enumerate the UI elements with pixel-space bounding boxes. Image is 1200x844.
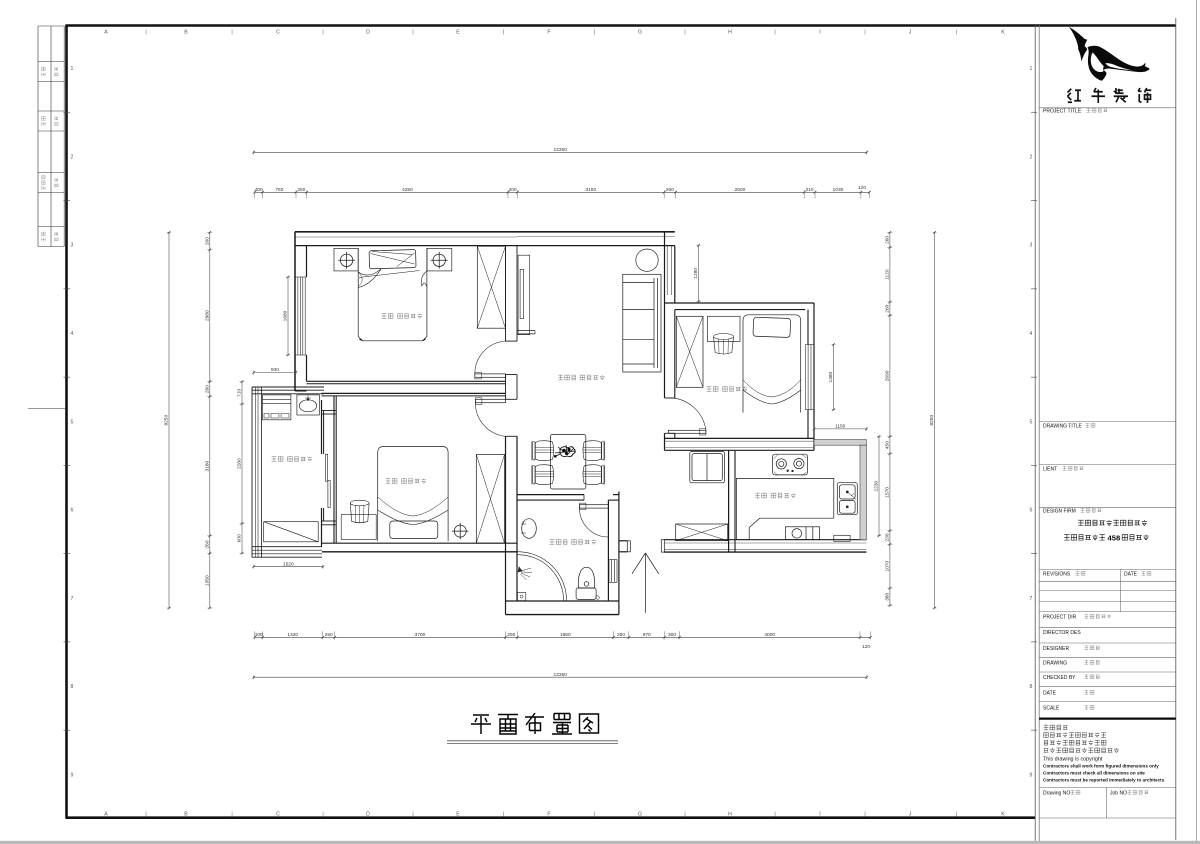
svg-text:260: 260: [297, 187, 305, 193]
svg-text:J: J: [909, 812, 912, 818]
svg-text:Contractors must be reported i: Contractors must be reported immediately…: [1043, 778, 1165, 783]
svg-text:260: 260: [204, 237, 210, 245]
svg-text:4: 4: [1030, 331, 1033, 337]
svg-text:6: 6: [1030, 508, 1033, 514]
svg-text:|: |: [594, 30, 595, 36]
svg-text:DRAWING TITLE: DRAWING TITLE: [1043, 424, 1083, 430]
svg-text:4250: 4250: [402, 187, 413, 193]
svg-text:|: |: [774, 30, 775, 36]
svg-text:100: 100: [255, 632, 263, 638]
svg-text:1680: 1680: [283, 310, 289, 321]
svg-text:1050: 1050: [204, 575, 210, 586]
svg-text:1520: 1520: [283, 562, 294, 568]
svg-text:2980: 2980: [204, 310, 210, 321]
svg-text:PROJECT TITLE: PROJECT TITLE: [1043, 109, 1082, 115]
svg-text:Drawing NO: Drawing NO: [1043, 791, 1070, 797]
svg-text:|: |: [322, 30, 323, 36]
svg-text:|: |: [774, 812, 775, 818]
svg-text:I: I: [819, 812, 820, 818]
svg-text:710: 710: [237, 388, 243, 396]
svg-text:4: 4: [71, 331, 74, 337]
svg-text:|: |: [145, 30, 146, 36]
svg-text:CHECKED BY: CHECKED BY: [1043, 675, 1076, 681]
svg-text:K: K: [1001, 30, 1005, 36]
svg-text:210: 210: [806, 187, 814, 193]
svg-text:REVISIONS: REVISIONS: [1043, 572, 1071, 578]
svg-text:|: |: [412, 30, 413, 36]
svg-text:F: F: [547, 30, 550, 36]
svg-text:DATE: DATE: [1124, 572, 1138, 578]
svg-text:2230: 2230: [874, 480, 880, 491]
svg-text:|: |: [864, 30, 865, 36]
svg-text:260: 260: [204, 385, 210, 393]
svg-text:3180: 3180: [204, 460, 210, 471]
svg-text:250: 250: [325, 632, 333, 638]
svg-text:230: 230: [884, 533, 890, 541]
svg-text:DESIGNER: DESIGNER: [1043, 646, 1070, 652]
svg-text:H: H: [728, 30, 732, 36]
svg-text:PROJECT DIR: PROJECT DIR: [1043, 615, 1077, 621]
svg-text:120: 120: [862, 644, 870, 650]
svg-text:|: |: [956, 30, 957, 36]
svg-text:E: E: [456, 812, 460, 818]
svg-text:13350: 13350: [554, 672, 568, 678]
svg-text:9: 9: [71, 772, 74, 778]
svg-text:|: |: [684, 30, 685, 36]
svg-text:120: 120: [858, 185, 866, 191]
svg-text:2280: 2280: [237, 458, 243, 469]
svg-text:2: 2: [1030, 155, 1033, 161]
svg-text:380: 380: [884, 592, 890, 600]
svg-text:8: 8: [1030, 684, 1033, 690]
svg-text:DRAWING: DRAWING: [1043, 661, 1067, 667]
svg-text:1120: 1120: [884, 269, 890, 280]
svg-text:4000: 4000: [764, 632, 775, 638]
svg-text:200: 200: [509, 187, 517, 193]
svg-text:8: 8: [71, 684, 74, 690]
svg-text:7: 7: [1030, 596, 1033, 602]
svg-text:1030: 1030: [833, 187, 844, 193]
svg-text:260: 260: [204, 540, 210, 548]
svg-text:C: C: [276, 812, 280, 818]
svg-text:930: 930: [271, 367, 279, 373]
svg-text:D: D: [366, 812, 370, 818]
svg-text:|: |: [322, 812, 323, 818]
svg-text:600: 600: [237, 534, 243, 542]
svg-text:A: A: [104, 812, 108, 818]
svg-text:LIENT: LIENT: [1043, 467, 1057, 473]
svg-text:DATE: DATE: [1043, 691, 1057, 697]
svg-text:|: |: [503, 30, 504, 36]
svg-text:3: 3: [1030, 243, 1033, 249]
svg-text:5: 5: [1030, 419, 1033, 425]
svg-text:G: G: [638, 812, 642, 818]
svg-text:Contractors must check all dim: Contractors must check all dimensions on…: [1043, 771, 1145, 776]
svg-text:260: 260: [617, 632, 625, 638]
svg-text:2600: 2600: [735, 187, 746, 193]
svg-text:6: 6: [71, 508, 74, 514]
svg-text:3150: 3150: [585, 187, 596, 193]
svg-text:I: I: [819, 30, 820, 36]
svg-text:1: 1: [1030, 66, 1033, 72]
svg-text:5: 5: [71, 419, 74, 425]
svg-text:8250: 8250: [929, 415, 935, 426]
svg-text:1150: 1150: [835, 424, 846, 430]
svg-text:9: 9: [1030, 772, 1033, 778]
svg-text:A: A: [104, 30, 108, 36]
svg-text:|: |: [412, 812, 413, 818]
svg-text:Contractors shall work form fi: Contractors shall work form figured dime…: [1043, 764, 1159, 769]
svg-text:8250: 8250: [164, 415, 170, 426]
svg-text:1280: 1280: [693, 268, 699, 279]
svg-text:F: F: [547, 812, 550, 818]
svg-text:450: 450: [884, 441, 890, 449]
svg-text:3700: 3700: [415, 632, 426, 638]
svg-text:J: J: [909, 30, 912, 36]
svg-text:|: |: [145, 812, 146, 818]
svg-text:300: 300: [668, 632, 676, 638]
svg-text:DESIGN FIRM: DESIGN FIRM: [1043, 509, 1076, 515]
svg-text:|: |: [594, 812, 595, 818]
svg-text:G: G: [638, 30, 642, 36]
svg-text:C: C: [276, 30, 280, 36]
svg-text:|: |: [503, 812, 504, 818]
svg-text:458: 458: [1108, 534, 1121, 543]
svg-text:1380: 1380: [828, 371, 834, 382]
svg-text:2690: 2690: [884, 370, 890, 381]
svg-text:E: E: [456, 30, 460, 36]
svg-text:B: B: [184, 812, 188, 818]
svg-text:260: 260: [666, 187, 674, 193]
svg-text:1320: 1320: [287, 632, 298, 638]
svg-text:750: 750: [275, 187, 283, 193]
svg-text:400: 400: [255, 187, 263, 193]
svg-text:1070: 1070: [884, 561, 890, 572]
svg-text:K: K: [1001, 812, 1005, 818]
svg-text:|: |: [684, 812, 685, 818]
svg-text:SCALE: SCALE: [1043, 706, 1060, 712]
svg-text:1: 1: [71, 66, 74, 72]
svg-text:260: 260: [884, 236, 890, 244]
svg-text:260: 260: [884, 304, 890, 312]
svg-text:970: 970: [643, 632, 651, 638]
svg-text:3: 3: [71, 243, 74, 249]
svg-text:|: |: [956, 812, 957, 818]
svg-text:|: |: [231, 30, 232, 36]
svg-text:B: B: [184, 30, 188, 36]
svg-text:H: H: [728, 812, 732, 818]
svg-text:Job NO: Job NO: [1110, 791, 1127, 797]
svg-text:This drawing is copyright: This drawing is copyright: [1043, 757, 1103, 763]
svg-text:2: 2: [71, 155, 74, 161]
svg-text:1570: 1570: [884, 487, 890, 498]
svg-text:7: 7: [71, 596, 74, 602]
svg-text:D: D: [366, 30, 370, 36]
svg-text:DIRECTOR DES: DIRECTOR DES: [1043, 630, 1081, 636]
svg-text:|: |: [231, 812, 232, 818]
svg-text:|: |: [864, 812, 865, 818]
svg-text:1960: 1960: [560, 632, 571, 638]
svg-text:13350: 13350: [554, 147, 568, 153]
svg-text:250: 250: [507, 632, 515, 638]
